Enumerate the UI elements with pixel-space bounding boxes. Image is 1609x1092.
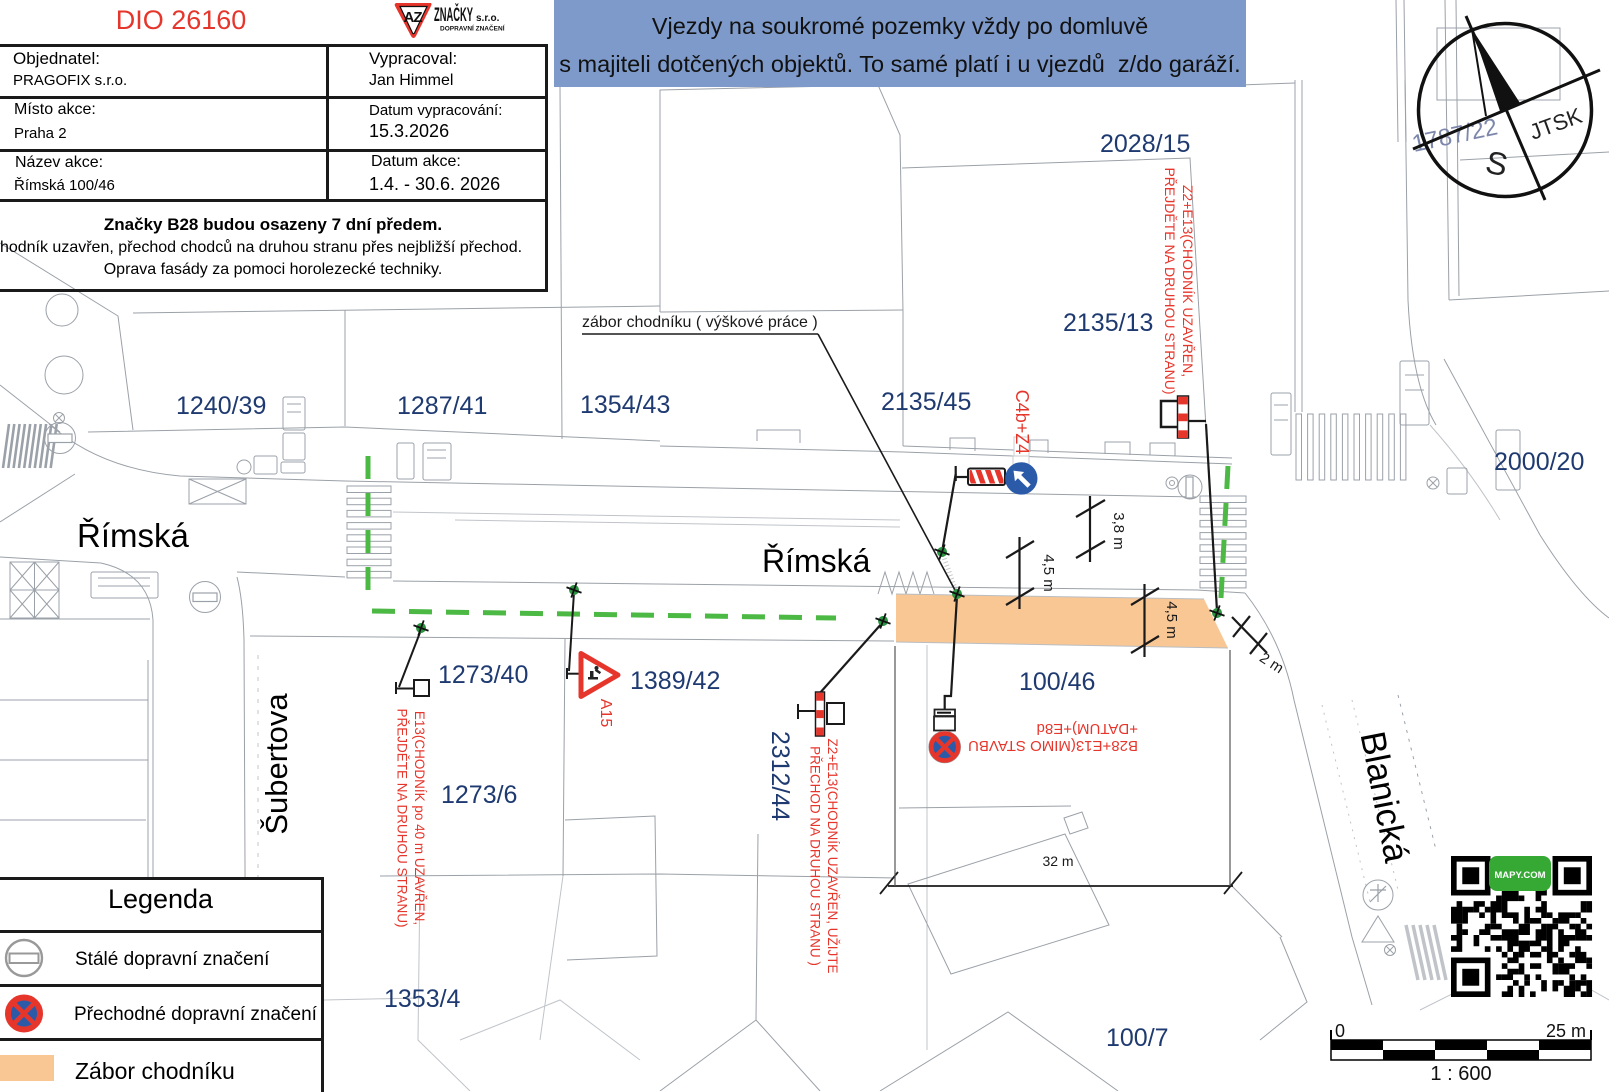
svg-text:Šubertova: Šubertova xyxy=(259,693,294,835)
svg-text:1287/41: 1287/41 xyxy=(397,392,487,420)
svg-text:1 : 600: 1 : 600 xyxy=(1430,1063,1491,1085)
svg-text:4,5 m: 4,5 m xyxy=(1163,601,1180,639)
svg-text:2135/13: 2135/13 xyxy=(1063,309,1153,337)
svg-text:Blanická: Blanická xyxy=(1353,728,1417,866)
svg-text:1240/39: 1240/39 xyxy=(176,392,266,420)
svg-text:B28+E13(MIMO STAVBU: B28+E13(MIMO STAVBU xyxy=(968,737,1138,754)
svg-text:1354/43: 1354/43 xyxy=(580,391,670,419)
svg-text:Z2+E13(CHODNÍK UZAVŘEN, UŽIJTE: Z2+E13(CHODNÍK UZAVŘEN, UŽIJTE xyxy=(825,739,840,974)
svg-text:2000/20: 2000/20 xyxy=(1494,448,1584,476)
svg-text:S: S xyxy=(1483,144,1511,184)
svg-text:100/46: 100/46 xyxy=(1019,668,1095,696)
svg-text:2028/15: 2028/15 xyxy=(1100,130,1190,158)
svg-text:1389/42: 1389/42 xyxy=(630,667,720,695)
svg-text:PŘECHOD NA DRUHOU STRANU ): PŘECHOD NA DRUHOU STRANU ) xyxy=(808,746,823,966)
svg-text:0: 0 xyxy=(1335,1021,1345,1041)
svg-text:C4b+Z4: C4b+Z4 xyxy=(1012,390,1032,455)
svg-text:25 m: 25 m xyxy=(1546,1021,1586,1041)
svg-text:A15: A15 xyxy=(597,699,614,728)
svg-text:2 m: 2 m xyxy=(1256,649,1286,677)
svg-text:4,5 m: 4,5 m xyxy=(1040,554,1057,592)
svg-text:32 m: 32 m xyxy=(1042,853,1073,869)
svg-text:E13(CHODNÍK po 40 m UZAVŘEN,: E13(CHODNÍK po 40 m UZAVŘEN, xyxy=(412,711,427,925)
svg-text:DOPRAVNÍ ZNAČENÍ: DOPRAVNÍ ZNAČENÍ xyxy=(440,24,505,33)
svg-text:2135/45: 2135/45 xyxy=(881,388,971,416)
svg-text:ZNAČKY: ZNAČKY xyxy=(434,4,473,26)
svg-text:1273/40: 1273/40 xyxy=(438,661,528,689)
svg-text:MAPY.COM: MAPY.COM xyxy=(1494,870,1545,881)
svg-text:AZ: AZ xyxy=(404,9,423,26)
svg-text:1273/6: 1273/6 xyxy=(441,781,517,809)
svg-text:PŘEJDĚTE NA DRUHOU STRANU): PŘEJDĚTE NA DRUHOU STRANU) xyxy=(1162,167,1178,394)
svg-text:JTSK: JTSK xyxy=(1526,103,1585,145)
svg-text:s.r.o.: s.r.o. xyxy=(476,13,500,24)
svg-text:PŘEJDĚTE NA DRUHOU STRANU): PŘEJDĚTE NA DRUHOU STRANU) xyxy=(395,708,410,927)
svg-text:Římská: Římská xyxy=(762,543,871,579)
svg-text:2312/44: 2312/44 xyxy=(766,731,794,821)
svg-text:Z2+E13(CHODNÍK UZAVŘEN,: Z2+E13(CHODNÍK UZAVŘEN, xyxy=(1180,185,1196,377)
svg-text:+DATUM)+E8d: +DATUM)+E8d xyxy=(1037,720,1138,737)
svg-text:Římská: Římská xyxy=(77,517,189,554)
svg-text:3,8 m: 3,8 m xyxy=(1110,512,1127,550)
svg-text:1353/4: 1353/4 xyxy=(384,985,461,1013)
svg-text:100/7: 100/7 xyxy=(1106,1024,1169,1052)
svg-text:zábor chodníku ( výškové práce: zábor chodníku ( výškové práce ) xyxy=(582,314,818,331)
